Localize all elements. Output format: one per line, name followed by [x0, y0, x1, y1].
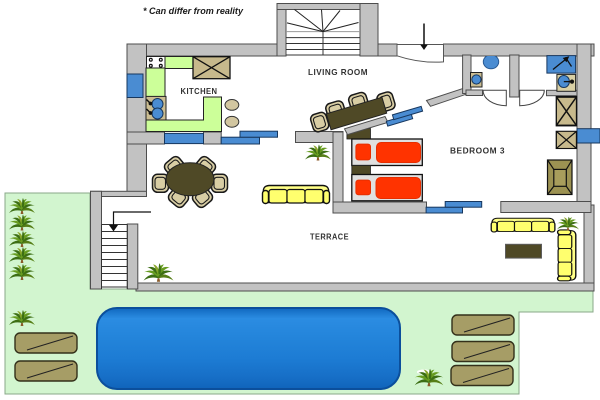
svg-text:* Can differ from reality: * Can differ from reality	[143, 6, 244, 17]
svg-text:TERRACE: TERRACE	[310, 233, 349, 242]
svg-text:LIVING ROOM: LIVING ROOM	[308, 68, 368, 77]
svg-text:BEDROOM 3: BEDROOM 3	[450, 147, 505, 156]
svg-text:KITCHEN: KITCHEN	[181, 87, 218, 96]
